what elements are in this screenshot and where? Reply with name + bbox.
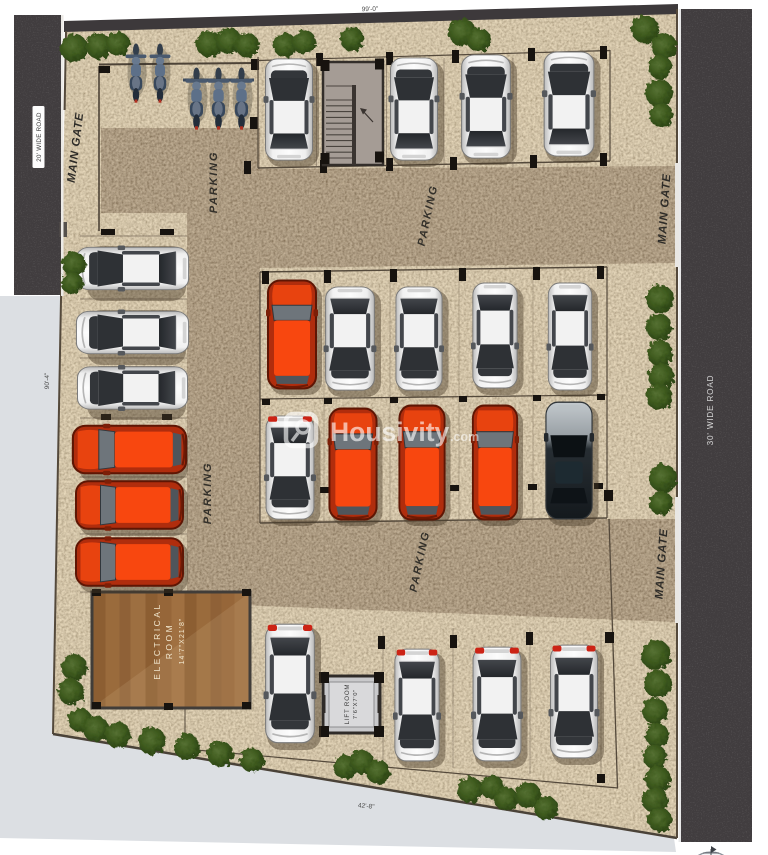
svg-text:.com: .com	[450, 430, 479, 444]
svg-text:42'-8": 42'-8"	[358, 802, 376, 810]
svg-text:30' WIDE ROAD: 30' WIDE ROAD	[706, 375, 715, 446]
svg-text:Housivity: Housivity	[330, 417, 450, 447]
svg-text:99'-0": 99'-0"	[362, 6, 379, 14]
svg-text:90'-4": 90'-4"	[44, 372, 51, 389]
svg-text:20' WIDE ROAD: 20' WIDE ROAD	[36, 112, 43, 162]
svg-text:PARKING: PARKING	[202, 462, 214, 525]
svg-text:PARKING: PARKING	[208, 151, 220, 214]
